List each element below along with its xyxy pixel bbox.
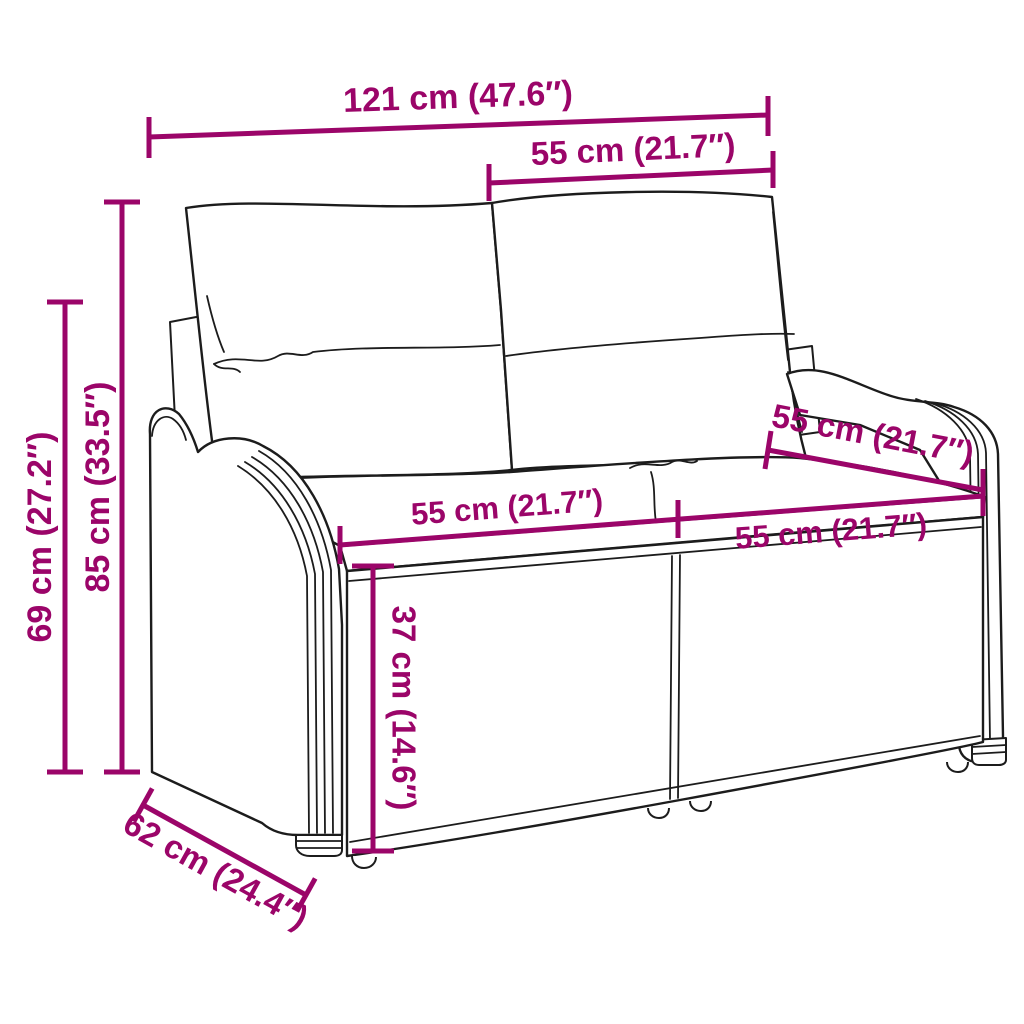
overall-width-label: 121 cm (47.6″): [342, 74, 573, 120]
armrest-height-label: 69 cm (27.2″): [21, 432, 59, 643]
seat-height-label: 37 cm (14.6″): [386, 606, 423, 811]
base-foot-middle-left: [648, 808, 669, 818]
dimension-armrest-height: 69 cm (27.2″): [21, 302, 83, 772]
base-foot-middle-right: [690, 801, 711, 811]
base: [347, 517, 983, 868]
dimension-back-cushion-width: 55 cm (21.7″): [489, 126, 773, 201]
back-cushion-right: [492, 192, 806, 470]
base-foot-right: [947, 762, 968, 772]
back-cushion-width-label: 55 cm (21.7″): [530, 126, 736, 172]
base-foot-left: [352, 856, 376, 868]
dimension-diagram: 121 cm (47.6″) 55 cm (21.7″) 69 cm (27.2…: [0, 0, 1024, 1024]
armrest-left-foot: [296, 835, 342, 856]
dimension-total-height: 85 cm (33.5″): [79, 202, 140, 772]
total-height-label: 85 cm (33.5″): [79, 382, 117, 593]
diagram-canvas: 121 cm (47.6″) 55 cm (21.7″) 69 cm (27.2…: [0, 0, 1024, 1024]
